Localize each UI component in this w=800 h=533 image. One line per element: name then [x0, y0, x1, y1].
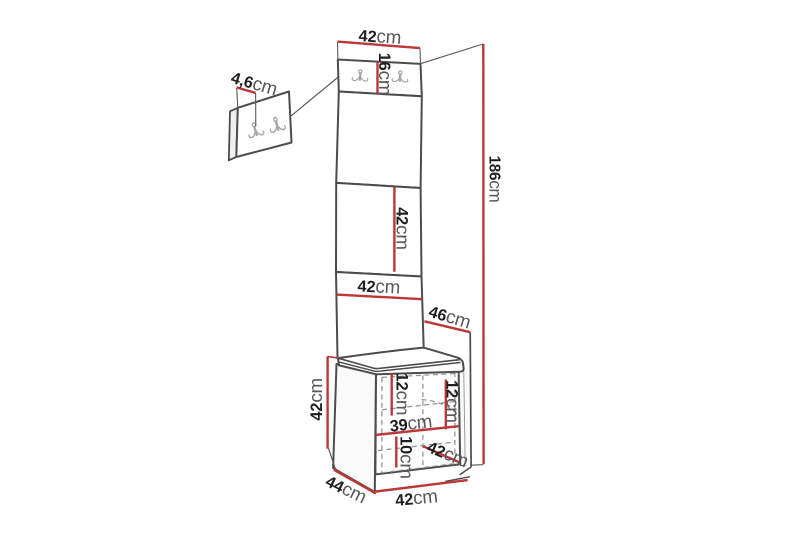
svg-text:186cm: 186cm — [486, 156, 506, 203]
svg-text:42cm: 42cm — [305, 378, 326, 421]
svg-text:12cm: 12cm — [443, 380, 464, 423]
svg-text:42cm: 42cm — [358, 24, 402, 48]
svg-text:4,6cm: 4,6cm — [229, 66, 280, 99]
svg-text:12cm: 12cm — [393, 373, 414, 416]
svg-text:16cm: 16cm — [375, 53, 396, 96]
svg-text:42cm: 42cm — [393, 207, 414, 250]
svg-text:42cm: 42cm — [357, 274, 401, 297]
svg-text:10cm: 10cm — [397, 436, 418, 479]
